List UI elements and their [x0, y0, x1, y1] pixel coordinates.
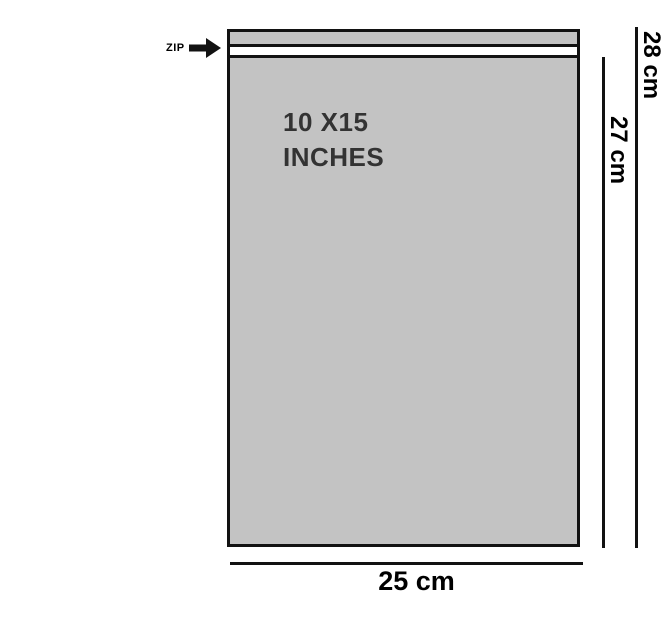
dimension-line-width	[230, 562, 583, 565]
dimension-label-overall-height: 28 cm	[637, 31, 663, 99]
ziplock-bag: 10 X15 INCHES	[227, 29, 580, 547]
bag-body: 10 X15 INCHES	[230, 58, 577, 544]
bag-flap	[230, 32, 577, 44]
bag-size-label: 10 X15 INCHES	[283, 105, 384, 175]
zip-callout: ZIP	[166, 38, 221, 58]
dimension-label-width: 25 cm	[240, 566, 593, 597]
bag-size-line2: INCHES	[283, 140, 384, 175]
zip-label: ZIP	[166, 42, 185, 54]
dimension-label-body-height: 27 cm	[604, 116, 632, 184]
zip-arrow-icon	[189, 38, 221, 58]
dimension-line-overall-height	[635, 27, 638, 548]
bag-size-line1: 10 X15	[283, 105, 384, 140]
diagram-canvas: 10 X15 INCHES ZIP 28 cm 27 cm 25 cm	[0, 0, 663, 638]
zip-strip	[230, 44, 577, 58]
